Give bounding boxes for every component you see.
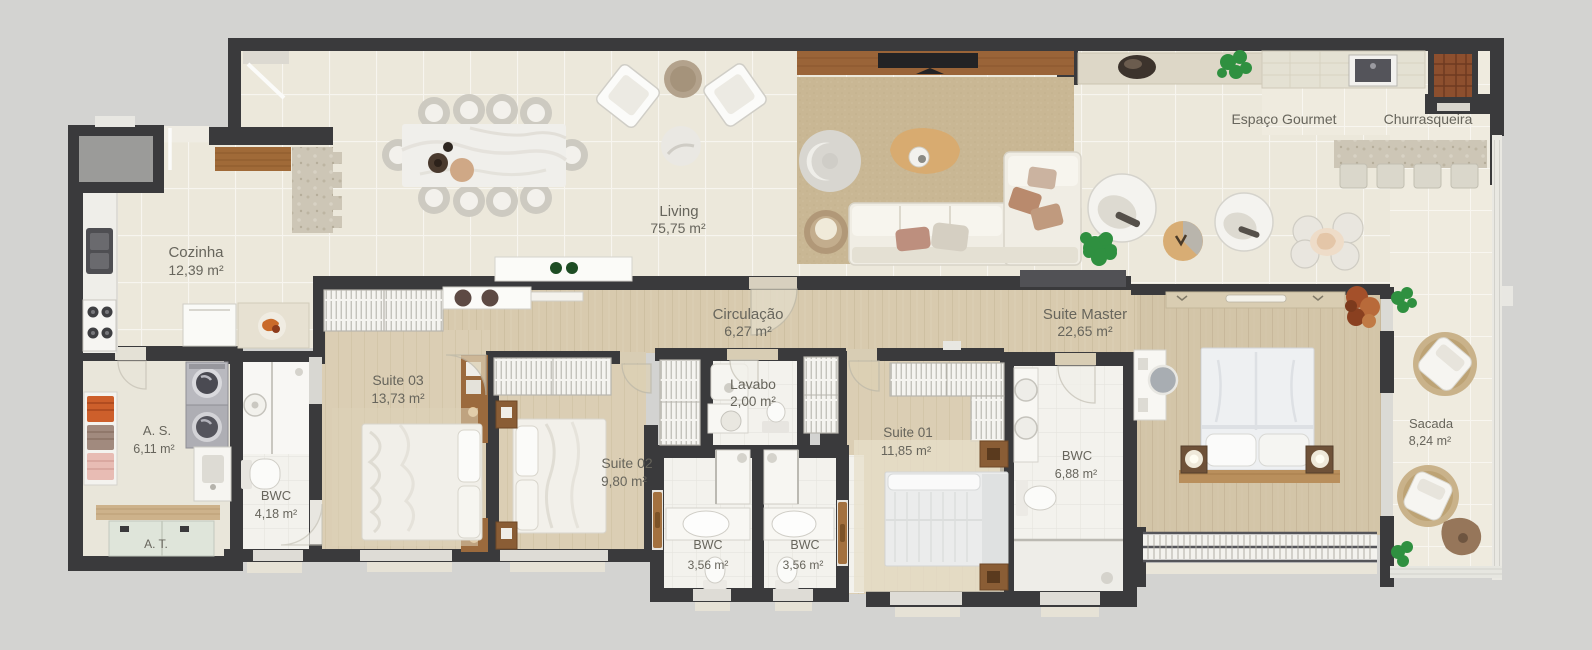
svg-text:22,65 m²: 22,65 m² <box>1057 323 1113 339</box>
svg-text:Suite 03: Suite 03 <box>372 372 424 388</box>
svg-text:A. T.: A. T. <box>144 537 168 551</box>
svg-text:A. S.: A. S. <box>143 423 171 438</box>
svg-text:Cozinha: Cozinha <box>168 244 224 261</box>
svg-text:11,85 m²: 11,85 m² <box>881 443 932 458</box>
svg-text:Suite 02: Suite 02 <box>601 455 653 471</box>
svg-text:3,56 m²: 3,56 m² <box>783 558 824 572</box>
svg-text:6,88 m²: 6,88 m² <box>1055 467 1097 481</box>
svg-text:Living: Living <box>659 203 698 220</box>
svg-text:Espaço Gourmet: Espaço Gourmet <box>1231 111 1336 127</box>
svg-text:Sacada: Sacada <box>1409 416 1454 431</box>
svg-text:13,73 m²: 13,73 m² <box>371 391 425 406</box>
svg-text:BWC: BWC <box>261 488 291 503</box>
svg-text:BWC: BWC <box>693 538 722 552</box>
svg-text:75,75 m²: 75,75 m² <box>650 220 706 236</box>
svg-text:2,00 m²: 2,00 m² <box>730 394 776 409</box>
svg-text:Suite Master: Suite Master <box>1043 306 1127 323</box>
svg-text:BWC: BWC <box>1062 448 1092 463</box>
svg-text:12,39 m²: 12,39 m² <box>168 262 224 278</box>
svg-text:4,18 m²: 4,18 m² <box>255 507 297 521</box>
svg-text:Churrasqueira: Churrasqueira <box>1384 111 1473 127</box>
svg-text:8,24 m²: 8,24 m² <box>1409 434 1451 448</box>
svg-text:BWC: BWC <box>790 538 819 552</box>
svg-text:6,27 m²: 6,27 m² <box>724 323 772 339</box>
svg-text:9,80 m²: 9,80 m² <box>601 474 647 489</box>
svg-text:6,11 m²: 6,11 m² <box>133 442 174 456</box>
svg-text:Lavabo: Lavabo <box>730 376 776 392</box>
svg-text:Suite 01: Suite 01 <box>883 425 933 440</box>
svg-text:Circulação: Circulação <box>713 306 784 323</box>
svg-text:3,56 m²: 3,56 m² <box>688 558 729 572</box>
